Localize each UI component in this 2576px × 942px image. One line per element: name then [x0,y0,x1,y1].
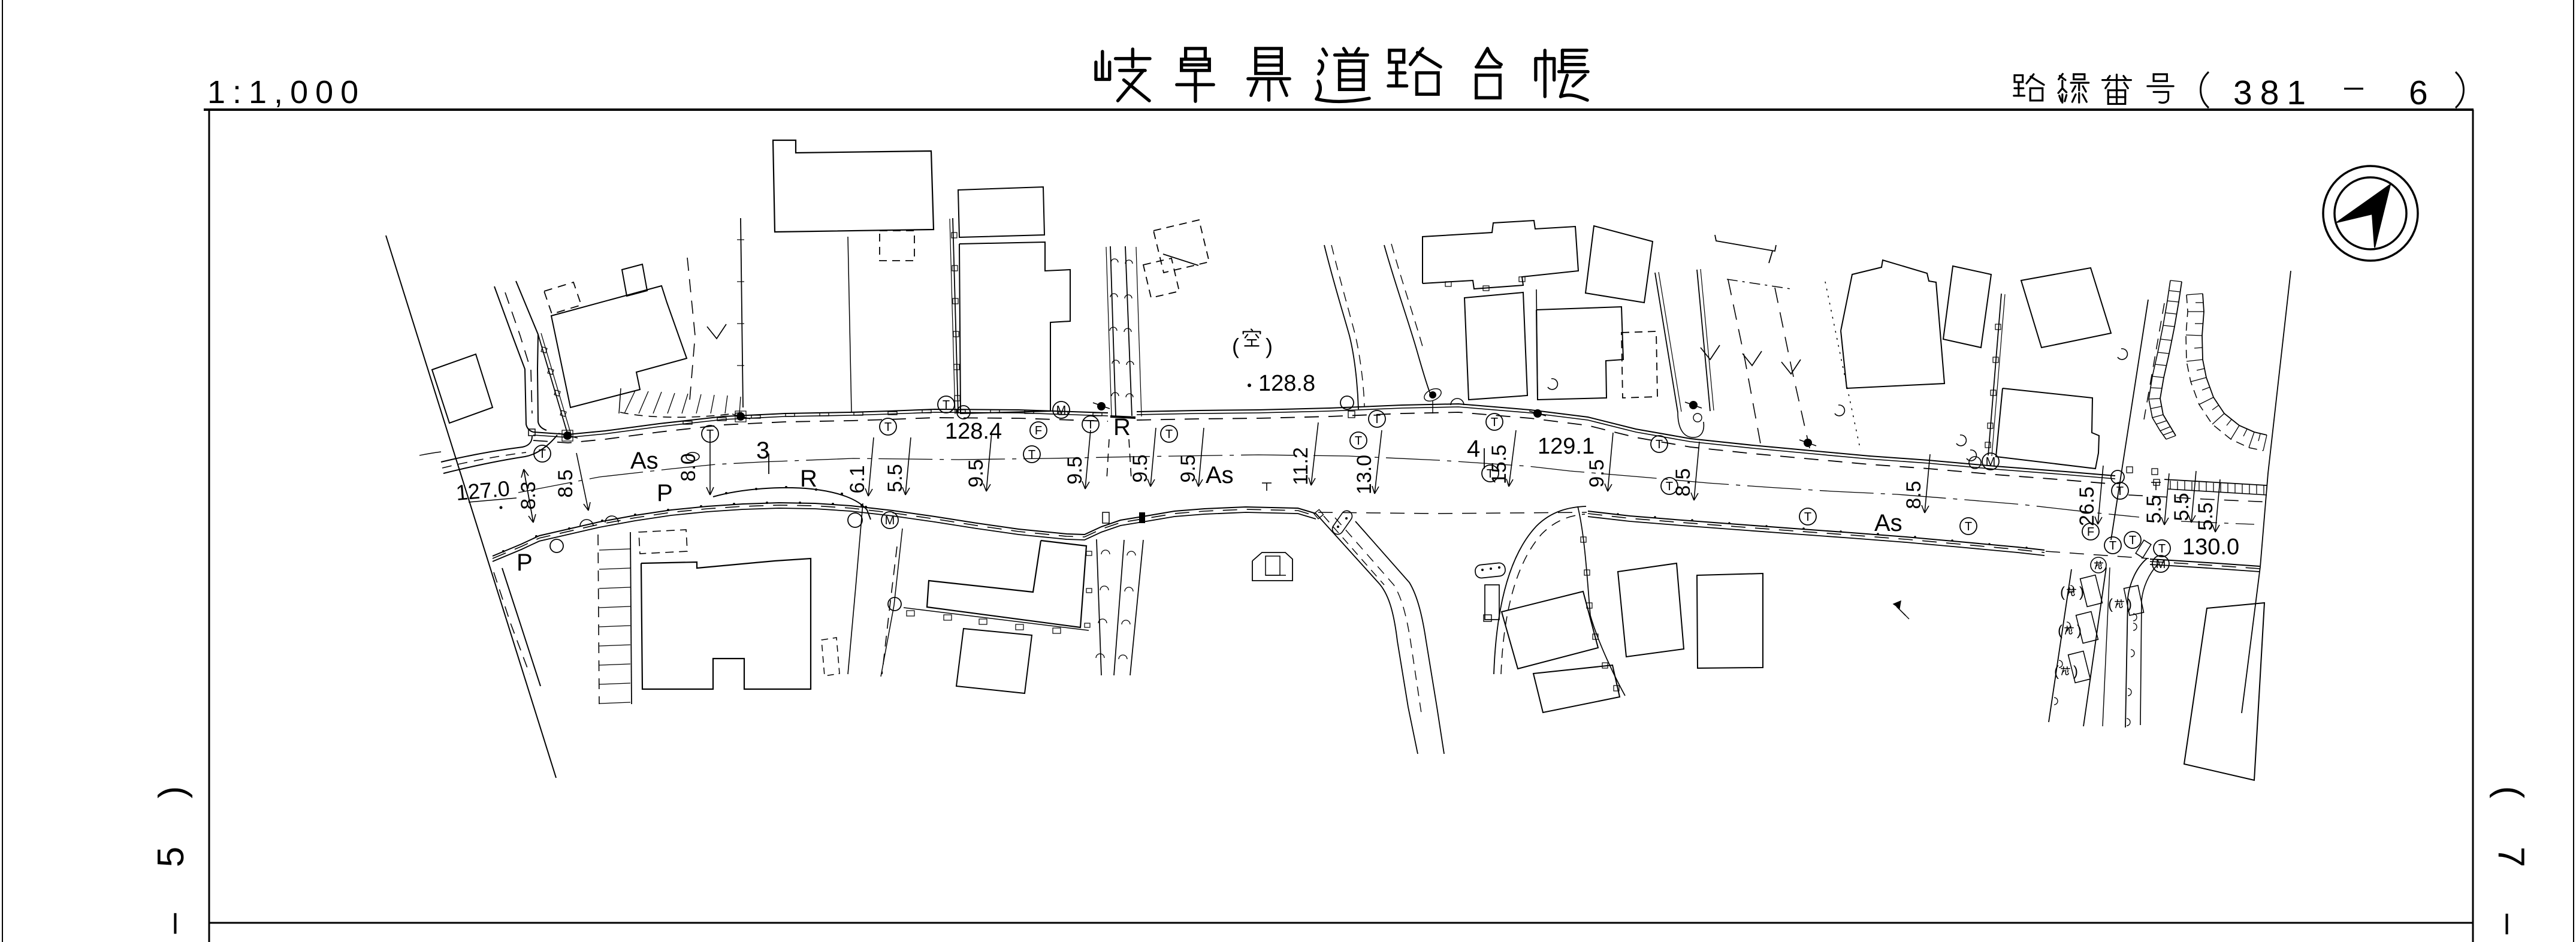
svg-text:T: T [2109,539,2116,552]
svg-text:(: ( [2058,623,2062,639]
svg-text:3: 3 [756,437,769,464]
svg-text:R: R [800,466,817,492]
svg-text:(: ( [2060,584,2065,600]
svg-text:): ) [1266,334,1273,358]
svg-text:(: ( [1232,334,1239,358]
svg-text:6: 6 [2409,74,2428,112]
svg-text:T: T [1491,416,1498,429]
svg-text:F: F [1035,424,1042,437]
svg-text:As: As [630,448,659,474]
svg-text:T: T [1373,413,1381,426]
svg-text:9.5: 9.5 [965,459,987,487]
svg-text:9.5: 9.5 [1064,456,1086,484]
svg-text:8.5: 8.5 [1902,481,1925,509]
svg-text:26.5: 26.5 [2076,487,2098,526]
svg-text:127.0: 127.0 [455,476,511,505]
svg-text:130.0: 130.0 [2182,535,2239,560]
svg-text:9.5: 9.5 [1177,454,1200,482]
svg-text:T: T [2129,534,2136,547]
svg-text:M: M [1986,455,1996,469]
svg-text:(: ( [2054,663,2059,680]
svg-text:T: T [2158,542,2166,555]
svg-text:5.5: 5.5 [2194,502,2217,530]
svg-text:8.5: 8.5 [554,469,577,497]
svg-text:(: ( [2108,596,2113,612]
svg-text:T: T [943,398,950,412]
svg-text:T: T [884,421,892,434]
svg-text:7: 7 [2490,847,2532,867]
svg-text:T: T [2116,485,2124,498]
svg-text:–: – [2489,914,2530,935]
svg-text:128.8: 128.8 [1258,371,1315,396]
svg-text:(: ( [2489,786,2530,799]
svg-text:T: T [1487,467,1494,481]
svg-text:T: T [1087,418,1094,431]
svg-text:9.5: 9.5 [1129,454,1152,482]
svg-text:1:1,000: 1:1,000 [207,74,366,110]
svg-text:T: T [1165,428,1173,441]
svg-text:129.1: 129.1 [1538,434,1594,459]
svg-text:T: T [539,448,546,461]
svg-text:P: P [517,549,533,576]
svg-text:As: As [1874,510,1902,536]
svg-text:T: T [1965,520,1972,533]
svg-text:As: As [1206,462,1234,488]
svg-text:T: T [1028,448,1035,461]
svg-text:): ) [152,786,193,799]
svg-text:F: F [2087,526,2094,539]
svg-text:): ) [2073,663,2078,680]
svg-text:T: T [1804,511,1811,524]
svg-text:13.0: 13.0 [1353,455,1376,494]
svg-text:): ) [2077,623,2082,639]
svg-text:T: T [1666,480,1673,493]
svg-text:T: T [1355,434,1362,448]
svg-text:–: – [152,913,193,934]
svg-text:8.0: 8.0 [677,453,700,481]
svg-text:): ) [2079,584,2084,600]
svg-text:P: P [657,480,673,506]
svg-text:381: 381 [2233,74,2314,112]
svg-text:T: T [706,428,714,441]
svg-text:M: M [885,514,895,527]
svg-text:M: M [1056,404,1067,417]
svg-text:5.5: 5.5 [2170,493,2193,521]
svg-text:9.5: 9.5 [1586,459,1608,487]
svg-text:T: T [1656,438,1663,451]
svg-text:128.4: 128.4 [945,419,1002,444]
svg-text:4: 4 [1467,436,1480,462]
svg-text:5: 5 [150,847,192,867]
svg-text:): ) [2127,596,2132,612]
